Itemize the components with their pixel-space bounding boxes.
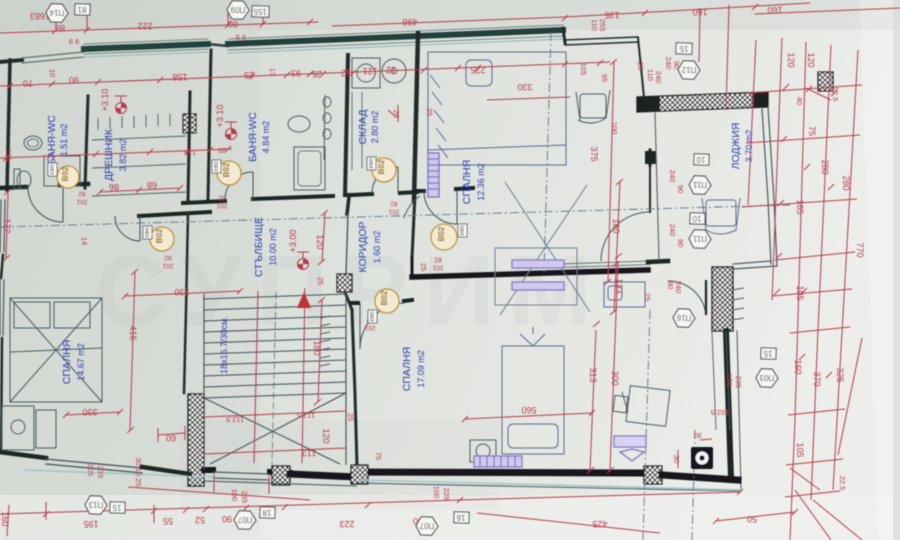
svg-text:П09: П09 bbox=[230, 5, 245, 14]
svg-text:165: 165 bbox=[795, 199, 805, 214]
svg-text:КФ0: КФ0 bbox=[370, 311, 376, 321]
svg-text:+3.00: +3.00 bbox=[288, 230, 298, 253]
svg-text:240: 240 bbox=[668, 170, 677, 183]
svg-text:25: 25 bbox=[218, 146, 226, 155]
svg-text:БАНЯ-WC: БАНЯ-WC bbox=[46, 115, 58, 165]
svg-text:4.84 m2: 4.84 m2 bbox=[261, 121, 271, 154]
svg-text:82: 82 bbox=[78, 190, 86, 197]
svg-text:ДРЕШНИК: ДРЕШНИК bbox=[103, 128, 115, 181]
svg-text:81: 81 bbox=[77, 5, 86, 14]
svg-text:П07: П07 bbox=[419, 521, 434, 530]
svg-text:330: 330 bbox=[517, 82, 532, 92]
svg-text:9 9: 9 9 bbox=[69, 37, 79, 46]
svg-text:235: 235 bbox=[240, 491, 249, 504]
svg-text:12: 12 bbox=[341, 68, 351, 78]
svg-text:3.70 m2: 3.70 m2 bbox=[744, 130, 754, 163]
svg-text:201: 201 bbox=[432, 264, 443, 271]
svg-text:120: 120 bbox=[786, 52, 796, 67]
svg-text:30.10.25: 30.10.25 bbox=[134, 457, 143, 486]
svg-text:B02: B02 bbox=[155, 228, 164, 243]
svg-text:17: 17 bbox=[268, 68, 277, 76]
svg-text:П16: П16 bbox=[676, 313, 691, 322]
svg-text:120: 120 bbox=[315, 234, 325, 249]
svg-text:235: 235 bbox=[442, 488, 451, 501]
svg-text:10.00 m2: 10.00 m2 bbox=[268, 228, 278, 266]
svg-text:416: 416 bbox=[128, 325, 138, 340]
svg-text:425: 425 bbox=[592, 519, 607, 529]
svg-text:КФ0: КФ0 bbox=[214, 161, 220, 171]
svg-text:40: 40 bbox=[795, 97, 804, 105]
svg-text:50: 50 bbox=[747, 514, 757, 524]
svg-text:180: 180 bbox=[312, 340, 322, 355]
svg-text:100: 100 bbox=[610, 122, 619, 135]
svg-text:25: 25 bbox=[643, 293, 652, 301]
svg-text:160: 160 bbox=[692, 7, 707, 17]
svg-text:18: 18 bbox=[262, 508, 271, 517]
svg-text:110: 110 bbox=[646, 69, 655, 81]
svg-text:235: 235 bbox=[734, 376, 743, 389]
svg-text:3.82 m2: 3.82 m2 bbox=[118, 139, 128, 172]
svg-text:10: 10 bbox=[696, 155, 705, 164]
svg-text:93: 93 bbox=[291, 68, 301, 78]
svg-text:90: 90 bbox=[222, 514, 232, 524]
svg-text:112.5: 112.5 bbox=[297, 411, 315, 420]
svg-text:240: 240 bbox=[664, 57, 673, 70]
svg-text:П13: П13 bbox=[88, 500, 103, 509]
svg-text:КОРИДОР: КОРИДОР bbox=[357, 222, 369, 273]
svg-text:90: 90 bbox=[676, 239, 685, 247]
svg-text:26: 26 bbox=[392, 110, 401, 118]
svg-text:B02: B02 bbox=[61, 166, 70, 181]
svg-text:25: 25 bbox=[312, 69, 322, 79]
svg-text:22.5: 22.5 bbox=[838, 476, 847, 491]
svg-text:П11: П11 bbox=[692, 180, 707, 189]
svg-text:БАНЯ-WC: БАНЯ-WC bbox=[247, 112, 259, 162]
svg-text:133: 133 bbox=[614, 278, 624, 293]
svg-text:280: 280 bbox=[820, 159, 830, 174]
svg-text:ЛОДЖИЯ: ЛОДЖИЯ bbox=[730, 123, 742, 170]
svg-text:16: 16 bbox=[456, 513, 465, 522]
svg-text:770: 770 bbox=[855, 242, 865, 257]
svg-text:82: 82 bbox=[390, 200, 398, 207]
svg-text:30: 30 bbox=[672, 455, 681, 463]
svg-text:105: 105 bbox=[579, 63, 588, 76]
svg-text:201: 201 bbox=[162, 262, 173, 269]
svg-text:80: 80 bbox=[55, 23, 65, 33]
svg-text:135: 135 bbox=[4, 149, 13, 162]
svg-text:160: 160 bbox=[767, 5, 782, 15]
svg-text:B02: B02 bbox=[437, 226, 446, 241]
svg-text:180: 180 bbox=[611, 218, 621, 233]
svg-text:172: 172 bbox=[2, 218, 12, 233]
svg-text:25: 25 bbox=[316, 277, 325, 285]
svg-text:102.5: 102.5 bbox=[711, 408, 730, 417]
svg-text:СПАЛНЯ: СПАЛНЯ bbox=[461, 160, 473, 204]
svg-text:75: 75 bbox=[374, 452, 383, 460]
svg-text:12: 12 bbox=[386, 65, 396, 75]
svg-text:68: 68 bbox=[147, 180, 157, 190]
svg-text:СТЪЛБИЩЕ: СТЪЛБИЩЕ bbox=[253, 217, 265, 277]
svg-text:560: 560 bbox=[521, 405, 536, 415]
svg-text:195: 195 bbox=[83, 519, 98, 529]
svg-text:370: 370 bbox=[812, 371, 822, 386]
svg-text:КФ0: КФ0 bbox=[460, 225, 466, 235]
svg-text:112.5: 112.5 bbox=[226, 415, 244, 424]
svg-text:201: 201 bbox=[216, 202, 227, 209]
svg-text:СПАЛНЯ: СПАЛНЯ bbox=[401, 347, 413, 391]
svg-text:30: 30 bbox=[694, 431, 702, 440]
svg-text:80: 80 bbox=[228, 19, 238, 29]
svg-text:222: 222 bbox=[137, 21, 152, 31]
svg-text:B02: B02 bbox=[380, 290, 389, 305]
svg-text:330: 330 bbox=[82, 407, 97, 417]
svg-text:B02: B02 bbox=[377, 159, 386, 174]
svg-text:240: 240 bbox=[654, 71, 663, 84]
svg-text:325: 325 bbox=[835, 367, 845, 382]
svg-text:125: 125 bbox=[184, 148, 197, 157]
svg-text:120: 120 bbox=[321, 428, 331, 443]
svg-text:+3.10: +3.10 bbox=[215, 105, 225, 128]
svg-text:70: 70 bbox=[23, 78, 33, 88]
svg-text:110: 110 bbox=[590, 19, 599, 31]
svg-text:160: 160 bbox=[0, 511, 10, 526]
svg-text:100: 100 bbox=[432, 486, 441, 499]
svg-text:375: 375 bbox=[589, 146, 599, 161]
svg-text:82: 82 bbox=[164, 254, 172, 261]
svg-text:75: 75 bbox=[807, 126, 817, 136]
svg-text:15: 15 bbox=[112, 503, 121, 512]
svg-text:СКЛАД: СКЛАД bbox=[357, 109, 369, 144]
svg-text:25: 25 bbox=[425, 108, 434, 116]
svg-text:14.67 m2: 14.67 m2 bbox=[76, 343, 86, 381]
svg-text:120: 120 bbox=[806, 52, 816, 67]
svg-text:25: 25 bbox=[346, 413, 355, 421]
svg-text:КФ0: КФ0 bbox=[369, 158, 375, 168]
svg-text:498: 498 bbox=[402, 17, 417, 27]
svg-text:12.36 m2: 12.36 m2 bbox=[476, 163, 486, 201]
svg-text:255: 255 bbox=[598, 19, 607, 32]
svg-text:П11: П11 bbox=[692, 234, 707, 243]
svg-text:240: 240 bbox=[674, 281, 683, 294]
svg-text:160: 160 bbox=[793, 359, 803, 374]
svg-text:121: 121 bbox=[362, 66, 377, 76]
svg-text:18x16.7/30см.: 18x16.7/30см. bbox=[219, 316, 229, 374]
svg-text:223: 223 bbox=[339, 519, 354, 529]
svg-text:90: 90 bbox=[676, 185, 685, 193]
svg-text:201: 201 bbox=[76, 198, 87, 205]
svg-text:15: 15 bbox=[679, 44, 688, 53]
svg-text:82: 82 bbox=[218, 194, 226, 201]
svg-text:1.51 m2: 1.51 m2 bbox=[59, 124, 69, 157]
svg-text:90: 90 bbox=[69, 75, 79, 85]
svg-text:25: 25 bbox=[419, 263, 428, 271]
svg-text:B02: B02 bbox=[222, 162, 231, 177]
svg-text:10: 10 bbox=[48, 69, 57, 77]
svg-text:17.09 m2: 17.09 m2 bbox=[416, 350, 426, 388]
svg-text:10: 10 bbox=[692, 214, 701, 223]
svg-text:1.60 m2: 1.60 m2 bbox=[372, 231, 382, 264]
svg-text:330: 330 bbox=[174, 287, 189, 297]
svg-text:201: 201 bbox=[388, 208, 399, 215]
svg-text:П12: П12 bbox=[681, 65, 696, 74]
svg-text:155: 155 bbox=[253, 7, 267, 16]
svg-text:СПАЛНЯ: СПАЛНЯ bbox=[61, 340, 73, 384]
svg-text:225: 225 bbox=[470, 65, 485, 75]
svg-text:240: 240 bbox=[668, 224, 677, 237]
svg-text:КФ0: КФ0 bbox=[50, 164, 56, 174]
svg-text:170: 170 bbox=[725, 374, 734, 387]
svg-text:158: 158 bbox=[172, 72, 187, 82]
svg-text:105: 105 bbox=[795, 285, 805, 300]
svg-text:П03: П03 bbox=[759, 373, 774, 382]
svg-text:25: 25 bbox=[636, 62, 645, 70]
svg-text:313: 313 bbox=[588, 367, 598, 382]
svg-text:52: 52 bbox=[195, 515, 205, 525]
svg-text:82: 82 bbox=[434, 256, 442, 263]
svg-text:201: 201 bbox=[364, 324, 375, 331]
svg-text:100: 100 bbox=[230, 489, 239, 502]
svg-text:113: 113 bbox=[302, 448, 316, 458]
svg-text:86: 86 bbox=[109, 182, 119, 192]
svg-text:60: 60 bbox=[166, 433, 176, 443]
svg-text:25: 25 bbox=[244, 70, 254, 80]
svg-text:15: 15 bbox=[763, 349, 772, 358]
svg-text:22.5: 22.5 bbox=[831, 87, 840, 102]
svg-text:55: 55 bbox=[163, 516, 173, 526]
svg-text:+3.10: +3.10 bbox=[100, 89, 110, 112]
svg-text:П07: П07 bbox=[237, 515, 252, 524]
svg-text:2.80 m2: 2.80 m2 bbox=[370, 111, 380, 144]
svg-text:280: 280 bbox=[841, 175, 851, 190]
svg-text:205: 205 bbox=[86, 464, 95, 477]
svg-text:П14: П14 bbox=[49, 8, 64, 17]
svg-text:300: 300 bbox=[610, 370, 620, 385]
svg-text:80: 80 bbox=[666, 281, 675, 289]
svg-text:105: 105 bbox=[795, 442, 805, 457]
svg-text:95: 95 bbox=[600, 74, 609, 82]
svg-text:235: 235 bbox=[96, 466, 105, 479]
svg-text:14: 14 bbox=[80, 237, 89, 245]
svg-text:КФ0: КФ0 bbox=[145, 227, 151, 237]
svg-text:9 9: 9 9 bbox=[236, 33, 246, 42]
